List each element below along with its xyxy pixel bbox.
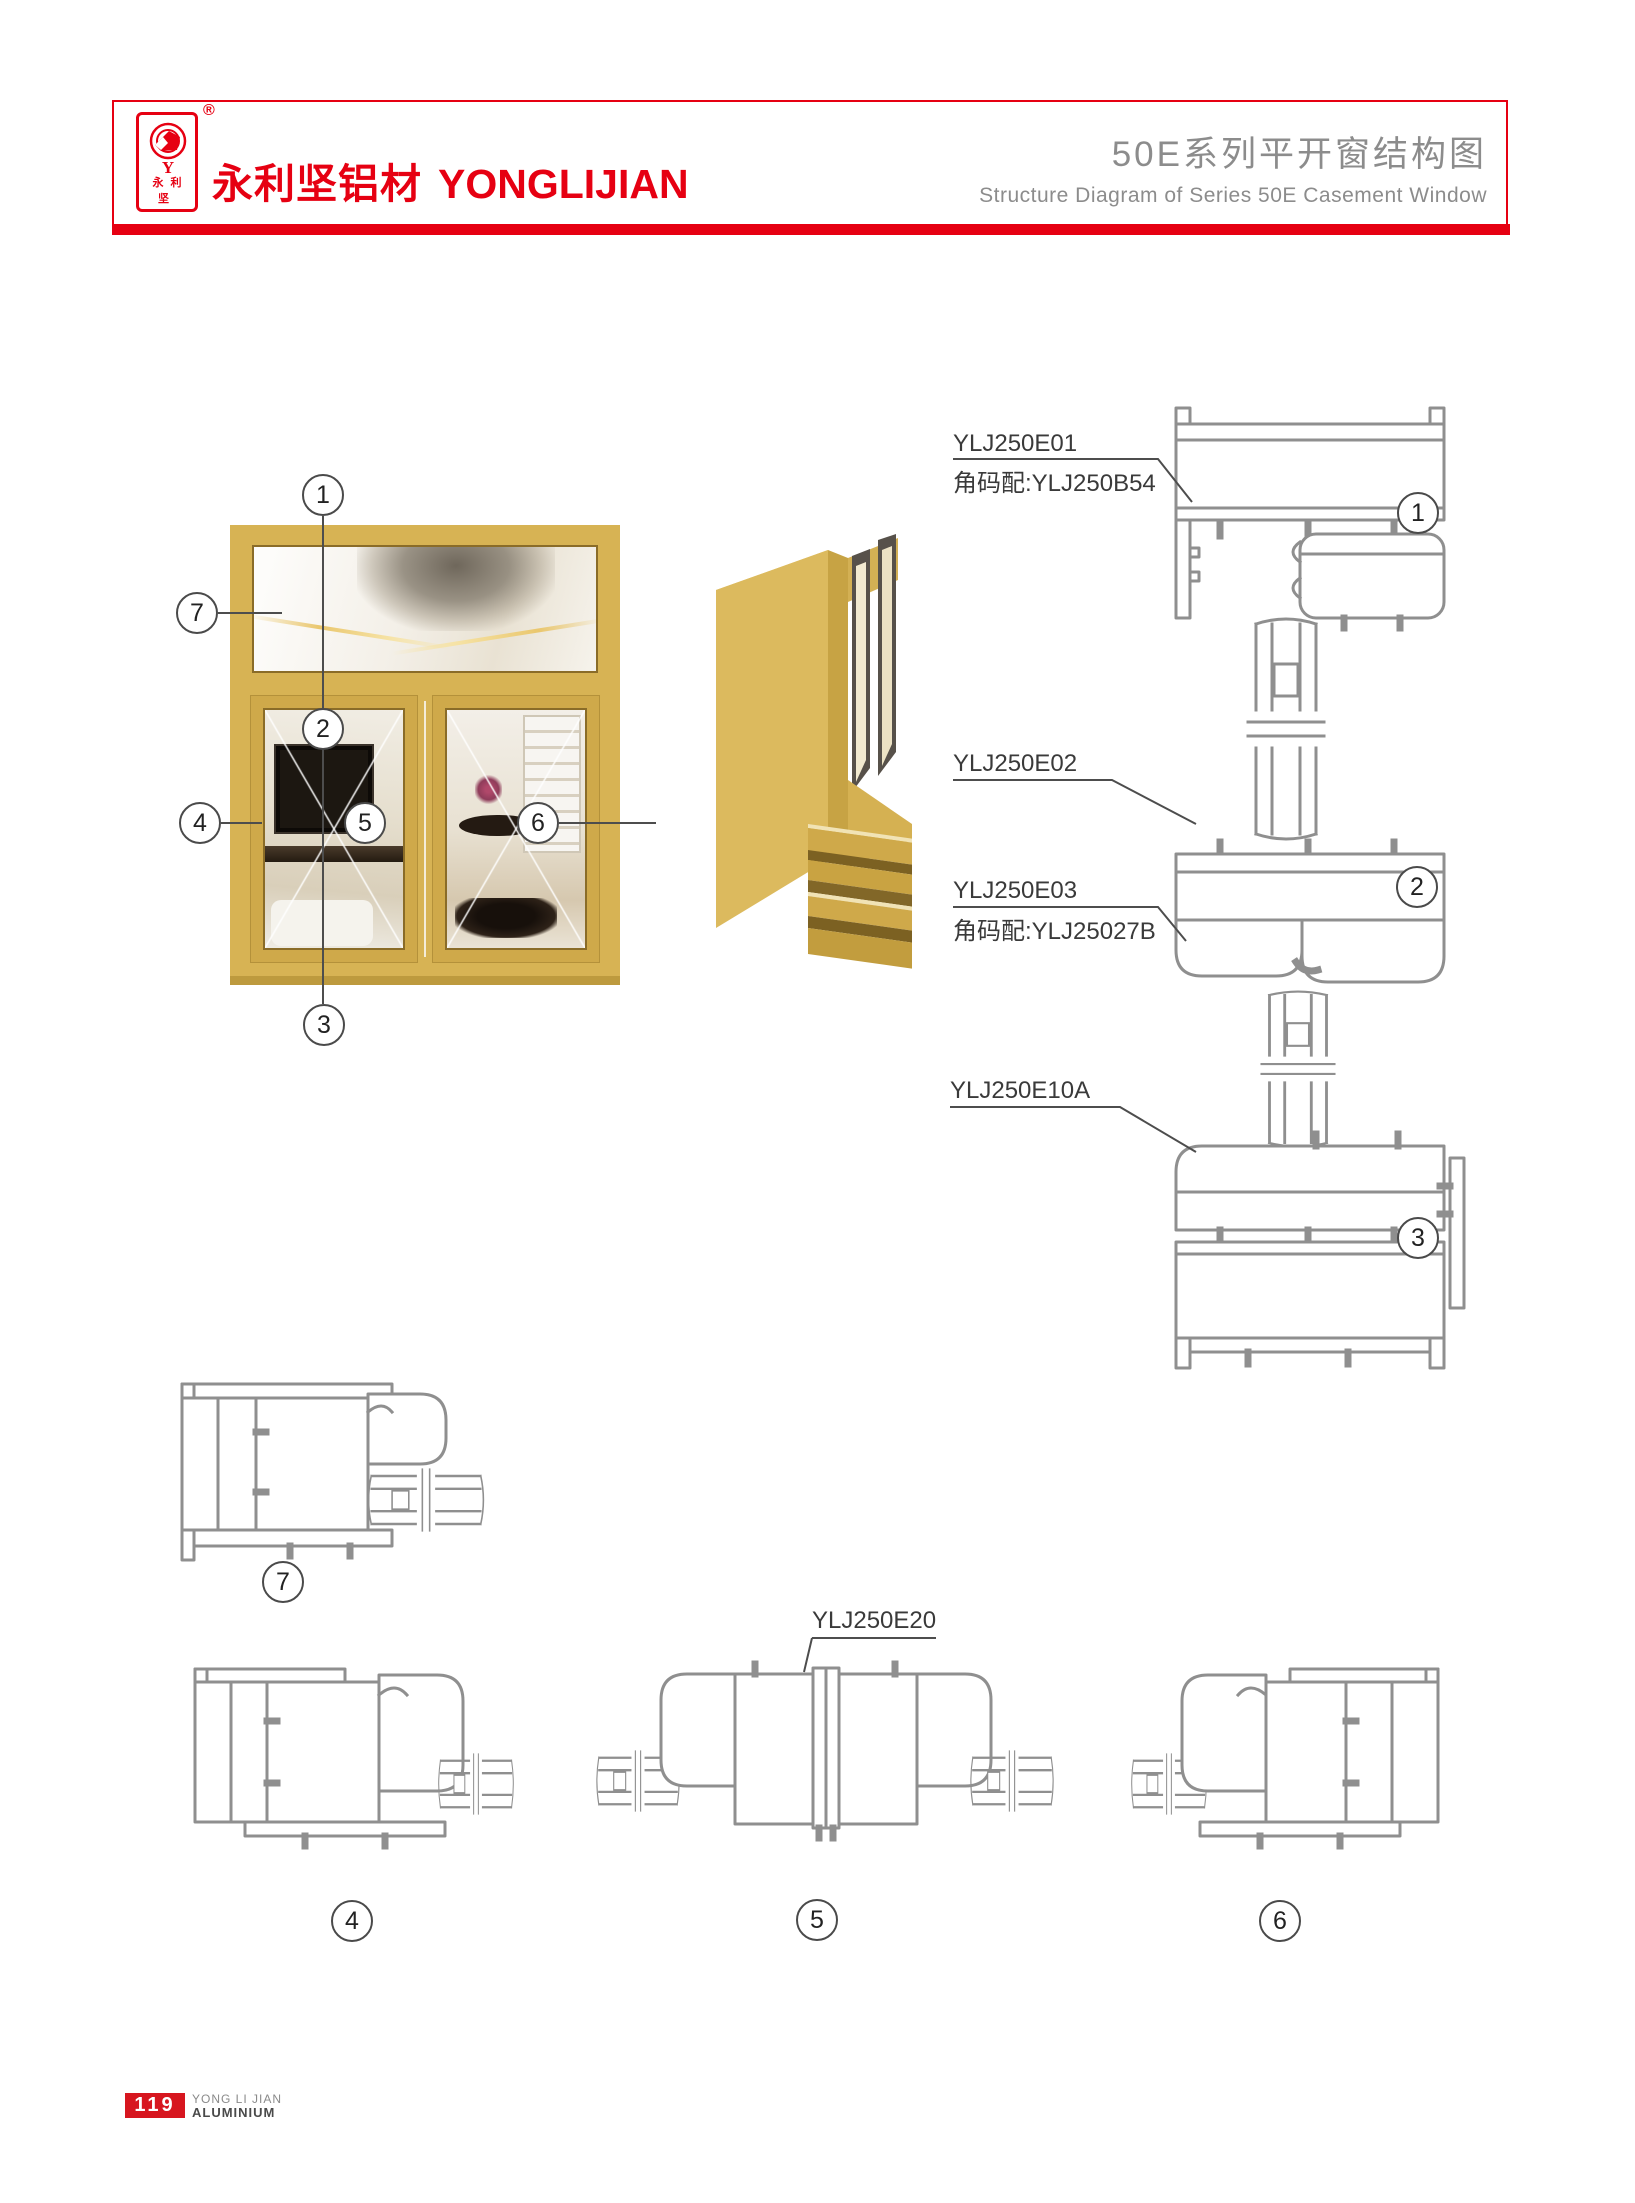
callout-6: 6 xyxy=(517,802,559,844)
label-ylj250e03-corner: 角码配:YLJ25027B xyxy=(953,911,1156,946)
section-callout-5: 5 xyxy=(796,1899,838,1941)
transom-glass xyxy=(252,545,598,673)
brand-logo: Y 永利坚 xyxy=(136,112,198,212)
callout-3: 3 xyxy=(303,1004,345,1046)
page-number-badge: 119 xyxy=(125,2093,185,2118)
label-ylj250e02: YLJ250E02 xyxy=(953,750,1077,778)
callout-5: 5 xyxy=(344,802,386,844)
section-callout-4: 4 xyxy=(331,1900,373,1942)
registered-trademark-icon: ® xyxy=(203,102,215,120)
chandelier-photo xyxy=(357,545,555,631)
header-red-bar xyxy=(112,224,1510,235)
page-title: 50E系列平开窗结构图 xyxy=(979,126,1487,177)
brand-name-cn: 永利坚铝材 xyxy=(212,161,422,207)
section-callout-6: 6 xyxy=(1259,1900,1301,1942)
callout-7: 7 xyxy=(176,592,218,634)
catalog-page: Y 永利坚 ® 永利坚铝材YONGLIJIAN 50E系列平开窗结构图 Stru… xyxy=(0,0,1635,2203)
callout-2: 2 xyxy=(302,708,344,750)
label-ylj250e01: YLJ250E01 xyxy=(953,430,1077,458)
casement-window-illustration xyxy=(230,525,620,985)
label-ylj250e10a: YLJ250E10A xyxy=(950,1077,1090,1105)
label-ylj250e01-corner: 角码配:YLJ250B54 xyxy=(953,463,1156,498)
footer-brand-line1: YONG LI JIAN xyxy=(192,2092,282,2106)
section-callout-7: 7 xyxy=(262,1561,304,1603)
section-callout-2: 2 xyxy=(1396,866,1438,908)
page-subtitle: Structure Diagram of Series 50E Casement… xyxy=(979,184,1487,208)
right-sash xyxy=(432,695,600,963)
callout-4: 4 xyxy=(179,802,221,844)
brand-name: 永利坚铝材YONGLIJIAN xyxy=(212,150,689,210)
right-sash-glass xyxy=(445,708,587,950)
section-5-drawing xyxy=(595,1650,1055,1870)
section-4-drawing xyxy=(185,1655,515,1870)
callout-1: 1 xyxy=(302,474,344,516)
page-title-block: 50E系列平开窗结构图 Structure Diagram of Series … xyxy=(979,126,1487,208)
section-callout-1: 1 xyxy=(1397,492,1439,534)
label-ylj250e03: YLJ250E03 xyxy=(953,877,1077,905)
section-6-drawing xyxy=(1130,1655,1460,1870)
section-7-drawing xyxy=(170,1372,500,1572)
profile-3d-render xyxy=(690,528,930,988)
logo-characters: 永利坚 xyxy=(139,174,195,206)
brand-name-en: YONGLIJIAN xyxy=(438,161,689,207)
section-callout-3: 3 xyxy=(1397,1217,1439,1259)
label-ylj250e20: YLJ250E20 xyxy=(812,1607,936,1635)
footer-brand-line2: ALUMINIUM xyxy=(192,2105,275,2120)
opening-direction-lines xyxy=(447,710,585,948)
mullion-joint-line xyxy=(424,701,426,957)
vertical-sections-drawing xyxy=(1148,402,1478,1457)
